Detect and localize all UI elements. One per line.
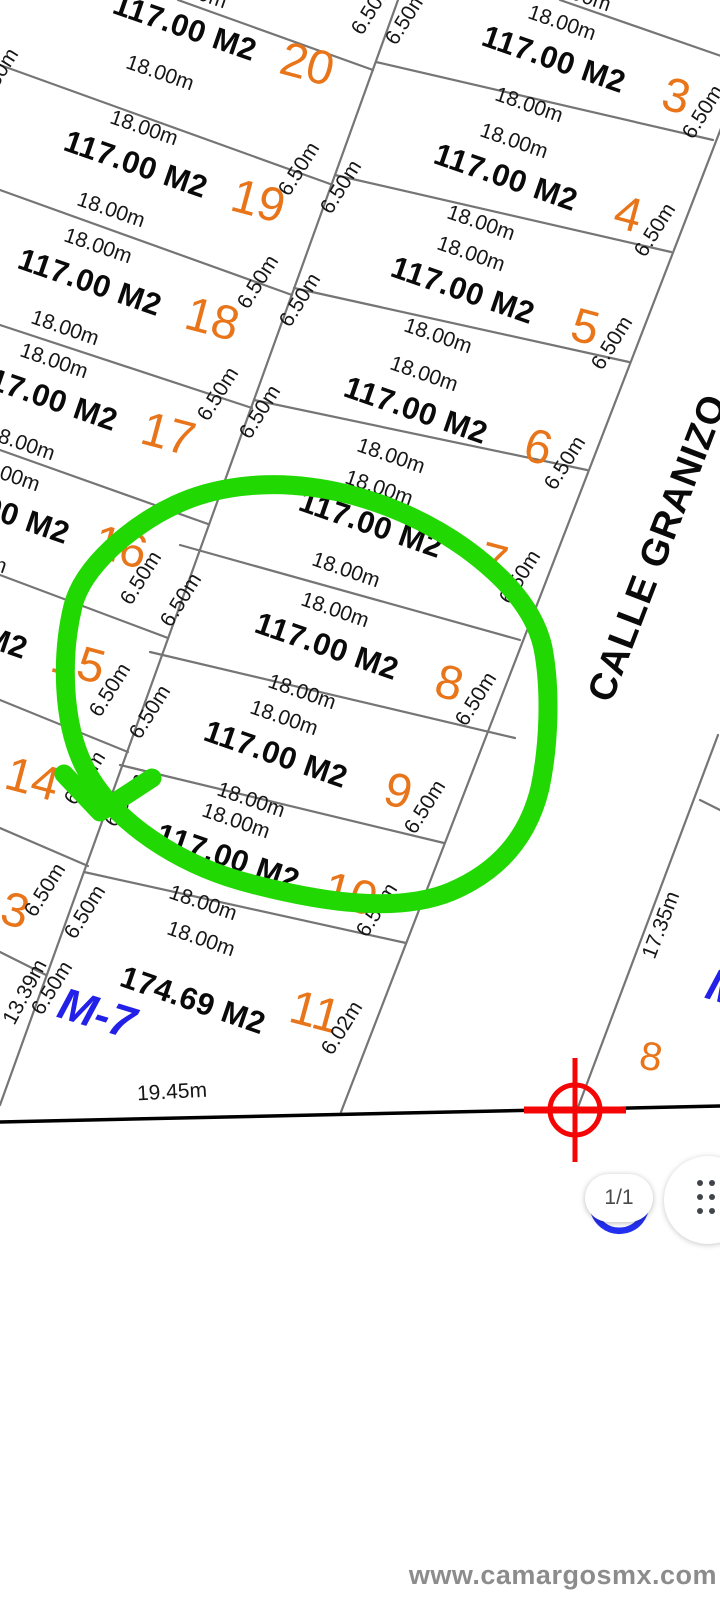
apps-grid-icon — [697, 1180, 720, 1214]
crosshair-marker — [524, 1058, 626, 1162]
page-indicator: 1/1 — [585, 1174, 653, 1222]
lot-map-viewer: 20117.00 M218.00m18.00m19117.00 M218.00m… — [0, 0, 720, 1600]
selection-circle-annotation — [64, 485, 548, 904]
watermark: www.camargosmx.com — [409, 1560, 717, 1591]
page-indicator-text: 1/1 — [604, 1186, 633, 1210]
map-annotations-overlay — [0, 0, 720, 1600]
